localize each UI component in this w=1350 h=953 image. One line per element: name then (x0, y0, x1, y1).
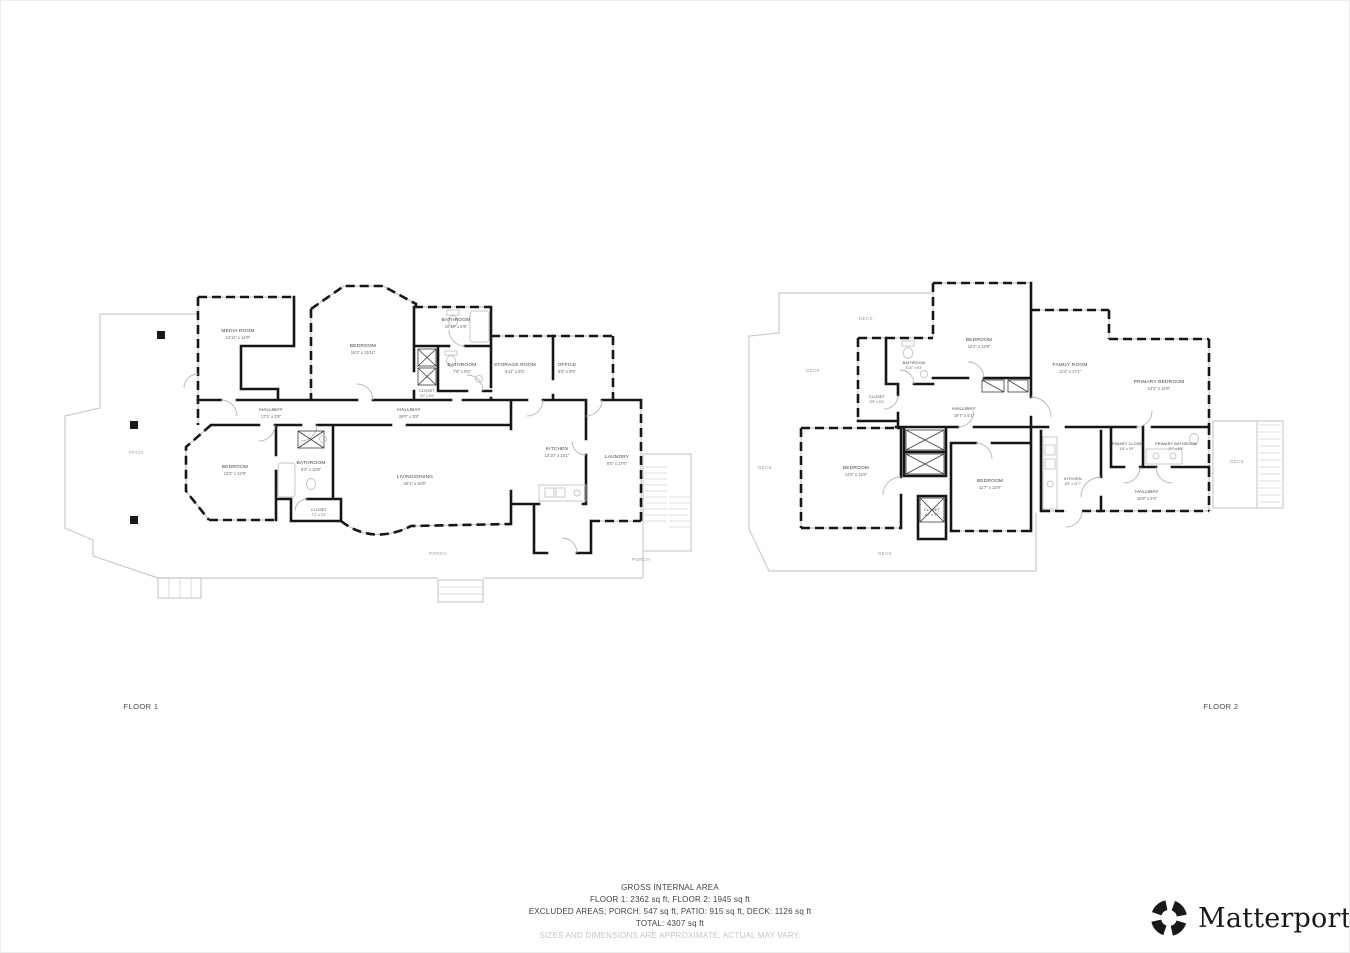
excluded-areas-line: EXCLUDED AREAS; PORCH: 547 sq ft, PATIO:… (375, 906, 965, 918)
porch-label: PORCH (429, 551, 447, 556)
room-dims: 4'8" x 5'9" (1120, 447, 1136, 451)
room-label: KITCHEN (546, 446, 569, 452)
room-dims: 13'0" x 13'9" (224, 471, 247, 476)
room-label: HALLWAY (1135, 489, 1159, 495)
matterport-pinwheel-icon (1149, 898, 1189, 938)
room-dims: 8'8" x 9'5" (558, 369, 576, 374)
matterport-logo: Matterport® (1149, 898, 1350, 938)
room-dims: 15'2" x 15'11" (351, 350, 376, 355)
room-label: BEDROOM (350, 343, 376, 349)
room-dims: 10'10" x 5'8" (445, 324, 468, 329)
room-label: CLOSET (869, 395, 886, 399)
room-label: BEDROOM (977, 478, 1003, 484)
porch-label: PORCH (632, 557, 650, 562)
deck-label: DECK (758, 465, 773, 470)
room-label: OFFICE (558, 362, 577, 368)
room-dims: 5'9" x 5'4" (870, 400, 886, 404)
room-dims: 13'11" x 14'9" (226, 335, 251, 340)
brand-name: Matterport (1198, 903, 1350, 934)
room-label: HALLWAY (397, 407, 421, 413)
room-label: BATHROOM (442, 317, 471, 323)
room-dims: 4'1" x 4'1" (925, 513, 941, 517)
room-label: BATHROOM (903, 361, 926, 365)
room-label: BEDROOM (843, 465, 869, 471)
floor-areas-line: FLOOR 1: 2362 sq ft, FLOOR 2: 1945 sq ft (375, 894, 965, 906)
room-label: CLOSET (419, 389, 436, 393)
deck-label: DECK (1230, 459, 1245, 464)
matterport-wordmark: Matterport® (1198, 903, 1350, 934)
room-dims: 8'11" x 9'5" (505, 369, 525, 374)
room-label: MEDIA ROOM (221, 328, 254, 334)
room-dims: 6'10" x 6'3" (906, 366, 924, 370)
room-dims: 7'2" x 3'2" (312, 513, 328, 517)
room-label: PRIMARY BATHROOM (1155, 442, 1197, 446)
room-dims: 15'8" x 5'4" (1137, 496, 1158, 501)
room-dims: 14'2" x 12'8" (1148, 386, 1171, 391)
room-dims: 19'7" x 5'1" (954, 413, 975, 418)
room-dims: 14'6" x 14'6" (845, 472, 868, 477)
room-dims: 11'4" x 17'1" (1059, 369, 1082, 374)
room-dims: 3'2" x 6'6" (420, 394, 436, 398)
deck-label: DECK (859, 316, 874, 321)
floor1-patio-outline (65, 314, 201, 598)
deck-label: DECK (806, 368, 821, 373)
room-label: HALLWAY (952, 406, 976, 412)
deck-label: DECK (878, 551, 893, 556)
room-dims: 9'7" x 5'9" (1169, 447, 1185, 451)
room-dims: 11'7" x 12'9" (979, 485, 1002, 490)
floor2-plan: BEDROOM 14'2" x 13'9" BATHROOM 6'10" x 6… (736, 279, 1296, 609)
floor1-room-labels: MEDIA ROOM 13'11" x 14'9" BEDROOM 15'2" … (129, 317, 650, 562)
room-label: LAUNDRY (605, 454, 630, 460)
floor1-fixtures (278, 310, 586, 501)
room-label: FAMILY ROOM (1052, 362, 1087, 368)
floorplan-page: MEDIA ROOM 13'11" x 14'9" BEDROOM 15'2" … (0, 0, 1350, 953)
room-dims: 10'10" x 15'1" (545, 453, 570, 458)
floor2-tag: FLOOR 2 (1186, 702, 1256, 711)
room-label: CLOSET (311, 508, 328, 512)
floor1-interior-walls (198, 297, 641, 553)
room-dims: 17'1" x 3'8" (261, 414, 282, 419)
room-label: BEDROOM (966, 337, 992, 343)
room-label: BATHROOM (448, 362, 477, 368)
room-label: STORAGE ROOM (494, 362, 536, 368)
room-label: HALLWAY (259, 407, 283, 413)
floor1-porch-outline (198, 454, 691, 602)
total-area-line: TOTAL: 4307 sq ft (375, 918, 965, 930)
room-label: PRIMARY BEDROOM (1134, 379, 1185, 385)
room-dims: 26'1" x 16'9" (404, 481, 427, 486)
room-dims: 8'8" x 11'7" (1065, 482, 1082, 486)
gross-internal-area-title: GROSS INTERNAL AREA (375, 882, 965, 894)
disclaimer-line: SIZES AND DIMENSIONS ARE APPROXIMATE, AC… (375, 930, 965, 942)
room-dims: 8'3" x 10'9" (301, 467, 322, 472)
room-label: BEDROOM (222, 464, 248, 470)
room-dims: 14'2" x 13'9" (968, 344, 991, 349)
room-label: CLOSET (924, 508, 941, 512)
patio-label: PATIO (129, 450, 144, 455)
floor2-room-labels: BEDROOM 14'2" x 13'9" BATHROOM 6'10" x 6… (758, 316, 1245, 556)
room-dims: 29'0" x 3'8" (399, 414, 420, 419)
floor1-plan: MEDIA ROOM 13'11" x 14'9" BEDROOM 15'2" … (61, 279, 701, 609)
room-label: KITCHEN (1064, 477, 1082, 481)
floor2-fixtures (902, 341, 1199, 509)
floor1-tag: FLOOR 1 (106, 702, 176, 711)
room-label: LIVING/DINING (397, 474, 434, 480)
area-summary: GROSS INTERNAL AREA FLOOR 1: 2362 sq ft,… (375, 882, 965, 942)
room-dims: 8'0" x 17'6" (607, 461, 628, 466)
room-label: PRIMARY CLOSET (1109, 442, 1145, 446)
patio-posts (130, 331, 165, 524)
room-label: BATHROOM (297, 460, 326, 466)
room-dims: 7'8" x 6'6" (453, 369, 471, 374)
